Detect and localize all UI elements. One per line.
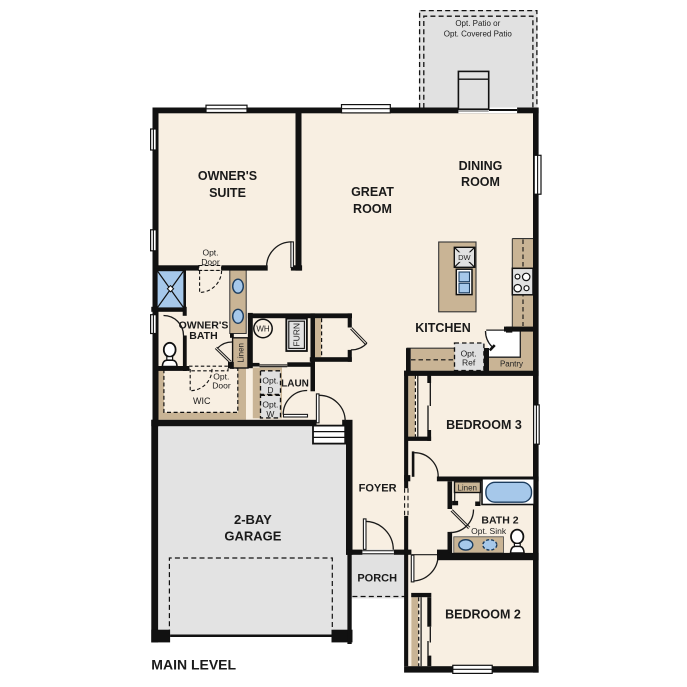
svg-text:SUITE: SUITE xyxy=(209,186,246,200)
svg-text:WH: WH xyxy=(256,324,270,333)
svg-text:FURN: FURN xyxy=(292,323,302,347)
svg-text:GARAGE: GARAGE xyxy=(224,528,281,543)
svg-text:Opt.: Opt. xyxy=(202,247,218,257)
svg-text:DW: DW xyxy=(458,253,471,262)
svg-text:Ref: Ref xyxy=(462,358,476,368)
svg-text:BATH 2: BATH 2 xyxy=(481,514,518,526)
svg-text:PORCH: PORCH xyxy=(357,573,397,585)
svg-text:BEDROOM 3: BEDROOM 3 xyxy=(446,418,522,432)
svg-text:D: D xyxy=(267,385,273,395)
svg-text:BATH: BATH xyxy=(189,330,217,342)
svg-text:Opt. Sink: Opt. Sink xyxy=(471,526,507,536)
svg-text:ROOM: ROOM xyxy=(353,202,392,216)
svg-text:DINING: DINING xyxy=(459,159,503,173)
svg-text:Linen: Linen xyxy=(457,483,477,492)
svg-text:MAIN LEVEL: MAIN LEVEL xyxy=(151,657,236,673)
svg-text:Door: Door xyxy=(201,257,220,267)
svg-text:KITCHEN: KITCHEN xyxy=(415,321,471,335)
svg-text:Door: Door xyxy=(212,381,231,391)
svg-text:BEDROOM 2: BEDROOM 2 xyxy=(445,607,521,621)
svg-text:LAUN: LAUN xyxy=(281,379,309,390)
svg-text:WIC: WIC xyxy=(193,396,211,406)
svg-text:Linen: Linen xyxy=(236,343,245,363)
svg-text:GREAT: GREAT xyxy=(351,185,394,199)
svg-text:2-BAY: 2-BAY xyxy=(234,512,272,527)
svg-text:FOYER: FOYER xyxy=(359,483,397,495)
svg-text:OWNER'S: OWNER'S xyxy=(198,169,257,183)
svg-text:W: W xyxy=(266,409,274,419)
svg-text:Pantry: Pantry xyxy=(500,359,523,368)
svg-text:ROOM: ROOM xyxy=(461,175,500,189)
svg-text:Opt. Covered Patio: Opt. Covered Patio xyxy=(444,30,513,39)
svg-text:Opt.: Opt. xyxy=(262,375,278,385)
svg-text:Opt.: Opt. xyxy=(262,400,278,410)
svg-text:Opt. Patio or: Opt. Patio or xyxy=(455,19,500,28)
